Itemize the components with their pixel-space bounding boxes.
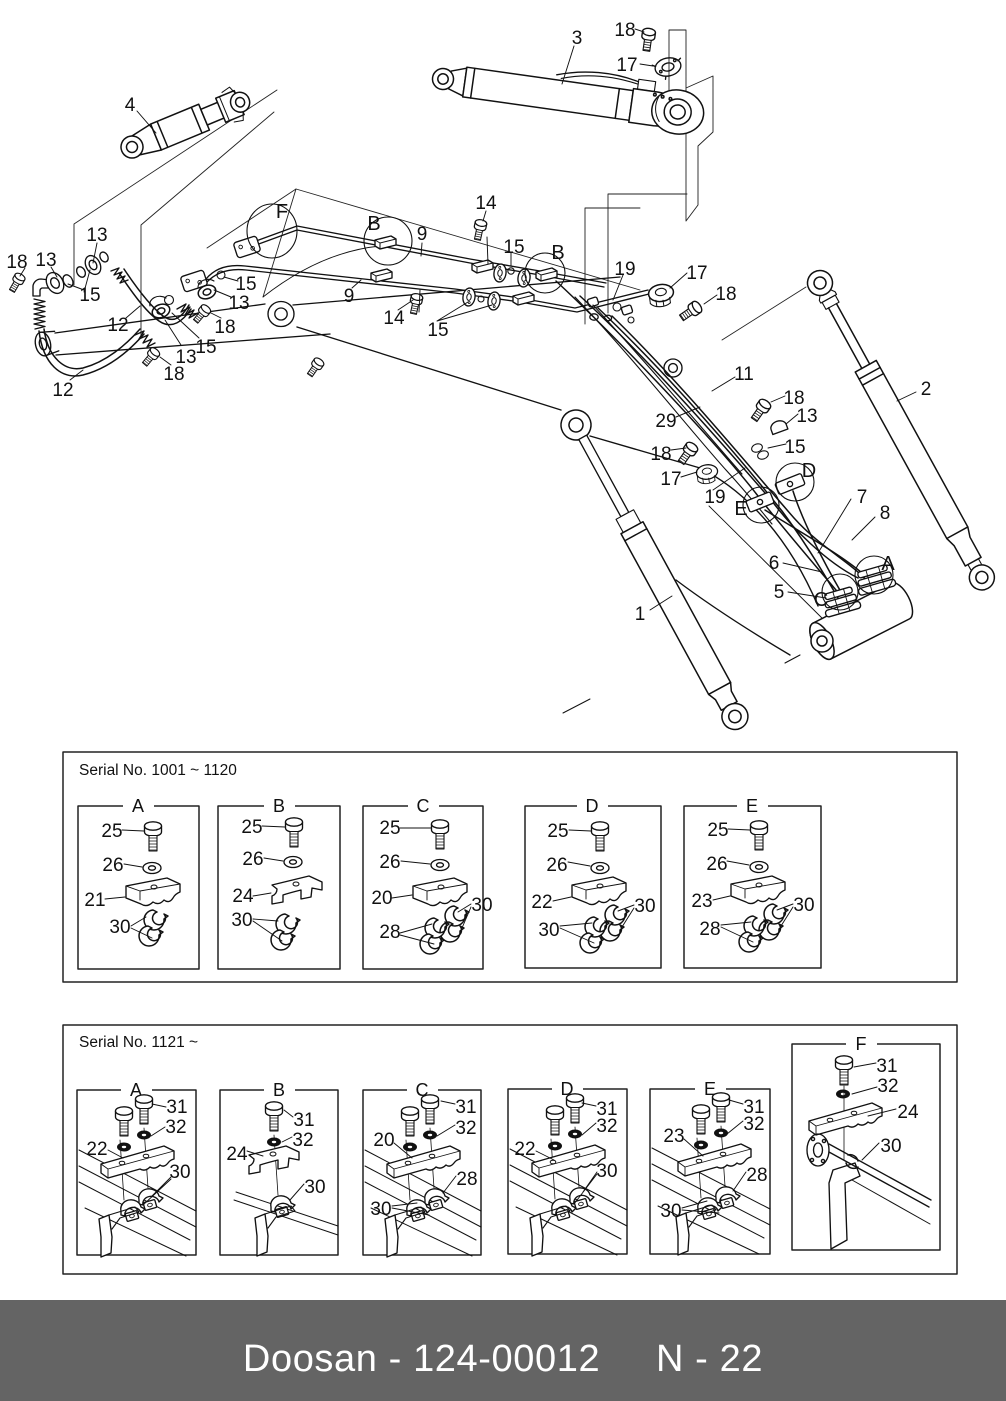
svg-text:28: 28 xyxy=(746,1165,767,1186)
svg-text:26: 26 xyxy=(706,854,727,875)
svg-text:A: A xyxy=(132,796,144,816)
svg-text:23: 23 xyxy=(663,1126,684,1147)
svg-text:26: 26 xyxy=(379,852,400,873)
svg-text:12: 12 xyxy=(52,380,73,401)
svg-text:32: 32 xyxy=(455,1118,476,1139)
svg-text:15: 15 xyxy=(427,320,448,341)
svg-text:14: 14 xyxy=(475,193,497,214)
svg-text:31: 31 xyxy=(455,1097,476,1118)
svg-text:18: 18 xyxy=(614,20,635,41)
svg-text:21: 21 xyxy=(84,890,105,911)
svg-text:18: 18 xyxy=(214,317,235,338)
svg-text:17: 17 xyxy=(686,263,707,284)
svg-text:24: 24 xyxy=(232,886,254,907)
svg-text:B: B xyxy=(273,796,285,816)
svg-text:30: 30 xyxy=(231,910,252,931)
svg-text:26: 26 xyxy=(546,855,567,876)
svg-text:20: 20 xyxy=(371,888,392,909)
svg-text:9: 9 xyxy=(417,224,428,245)
svg-text:Serial No. 1001 ~ 1120: Serial No. 1001 ~ 1120 xyxy=(79,762,237,779)
svg-text:E: E xyxy=(746,796,758,816)
svg-text:17: 17 xyxy=(660,469,681,490)
svg-text:32: 32 xyxy=(743,1114,764,1135)
svg-text:30: 30 xyxy=(660,1201,681,1222)
svg-text:25: 25 xyxy=(379,818,400,839)
svg-text:15: 15 xyxy=(784,437,805,458)
svg-text:30: 30 xyxy=(109,917,130,938)
svg-text:D: D xyxy=(802,460,816,482)
svg-text:31: 31 xyxy=(293,1110,314,1131)
svg-text:D: D xyxy=(586,796,599,816)
svg-text:19: 19 xyxy=(614,259,635,280)
svg-text:13: 13 xyxy=(86,225,107,246)
svg-text:30: 30 xyxy=(370,1199,391,1220)
svg-text:3: 3 xyxy=(572,28,583,49)
svg-text:18: 18 xyxy=(715,284,736,305)
svg-text:Serial No. 1121 ~: Serial No. 1121 ~ xyxy=(79,1034,198,1051)
svg-text:24: 24 xyxy=(226,1144,248,1165)
svg-text:25: 25 xyxy=(707,820,728,841)
svg-text:32: 32 xyxy=(877,1076,898,1097)
svg-text:30: 30 xyxy=(538,920,559,941)
svg-text:13: 13 xyxy=(35,250,56,271)
svg-text:13: 13 xyxy=(796,406,817,427)
svg-text:C: C xyxy=(417,796,430,816)
svg-text:17: 17 xyxy=(616,55,637,76)
svg-text:9: 9 xyxy=(344,286,355,307)
svg-text:32: 32 xyxy=(596,1116,617,1137)
svg-text:7: 7 xyxy=(857,487,868,508)
svg-text:B: B xyxy=(367,213,380,235)
svg-text:8: 8 xyxy=(880,503,891,524)
svg-text:19: 19 xyxy=(704,487,725,508)
svg-text:C: C xyxy=(814,589,828,611)
svg-text:15: 15 xyxy=(235,274,256,295)
svg-text:22: 22 xyxy=(86,1139,107,1160)
svg-text:28: 28 xyxy=(379,922,400,943)
svg-text:12: 12 xyxy=(107,315,128,336)
svg-text:22: 22 xyxy=(531,892,552,913)
svg-text:18: 18 xyxy=(6,252,27,273)
svg-text:2: 2 xyxy=(921,379,932,400)
svg-text:31: 31 xyxy=(166,1097,187,1118)
svg-text:1: 1 xyxy=(635,604,646,625)
svg-text:30: 30 xyxy=(793,895,814,916)
svg-text:29: 29 xyxy=(655,411,676,432)
svg-text:30: 30 xyxy=(169,1162,190,1183)
svg-text:25: 25 xyxy=(547,821,568,842)
svg-text:B: B xyxy=(273,1080,285,1100)
svg-text:5: 5 xyxy=(774,582,785,603)
svg-text:13: 13 xyxy=(228,293,249,314)
svg-text:15: 15 xyxy=(195,337,216,358)
svg-text:30: 30 xyxy=(471,895,492,916)
svg-text:F: F xyxy=(276,201,288,223)
svg-text:30: 30 xyxy=(634,896,655,917)
svg-text:6: 6 xyxy=(769,553,780,574)
svg-text:F: F xyxy=(856,1034,867,1054)
svg-text:4: 4 xyxy=(125,95,136,116)
svg-text:28: 28 xyxy=(456,1169,477,1190)
svg-text:28: 28 xyxy=(699,919,720,940)
svg-text:24: 24 xyxy=(897,1102,919,1123)
svg-text:14: 14 xyxy=(383,308,405,329)
svg-text:20: 20 xyxy=(373,1130,394,1151)
svg-text:E: E xyxy=(734,498,747,520)
svg-text:30: 30 xyxy=(304,1177,325,1198)
svg-text:32: 32 xyxy=(292,1130,313,1151)
svg-text:32: 32 xyxy=(165,1117,186,1138)
svg-text:26: 26 xyxy=(242,849,263,870)
svg-text:30: 30 xyxy=(596,1161,617,1182)
svg-text:18: 18 xyxy=(163,364,184,385)
svg-text:11: 11 xyxy=(734,364,754,385)
svg-text:30: 30 xyxy=(880,1136,901,1157)
svg-text:15: 15 xyxy=(79,285,100,306)
svg-text:A: A xyxy=(881,553,895,575)
svg-text:22: 22 xyxy=(514,1139,535,1160)
svg-text:25: 25 xyxy=(241,817,262,838)
svg-text:25: 25 xyxy=(101,821,122,842)
svg-text:26: 26 xyxy=(102,855,123,876)
svg-text:31: 31 xyxy=(876,1056,897,1077)
svg-text:15: 15 xyxy=(503,237,524,258)
svg-text:23: 23 xyxy=(691,891,712,912)
svg-text:18: 18 xyxy=(650,444,671,465)
svg-text:B: B xyxy=(551,242,564,264)
